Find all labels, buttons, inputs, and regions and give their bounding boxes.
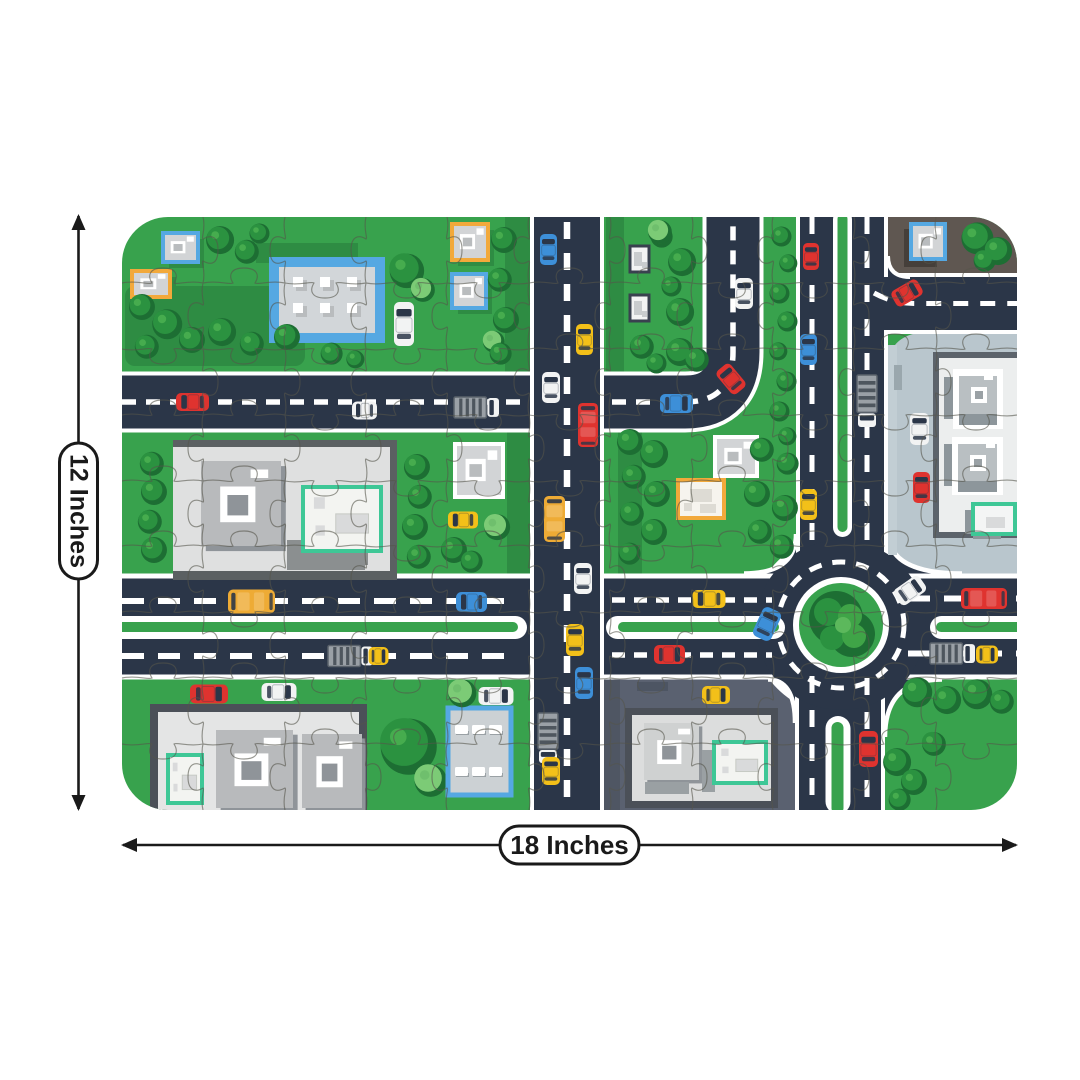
svg-text:12 Inches: 12 Inches: [65, 454, 93, 568]
svg-text:18 Inches: 18 Inches: [510, 830, 629, 860]
